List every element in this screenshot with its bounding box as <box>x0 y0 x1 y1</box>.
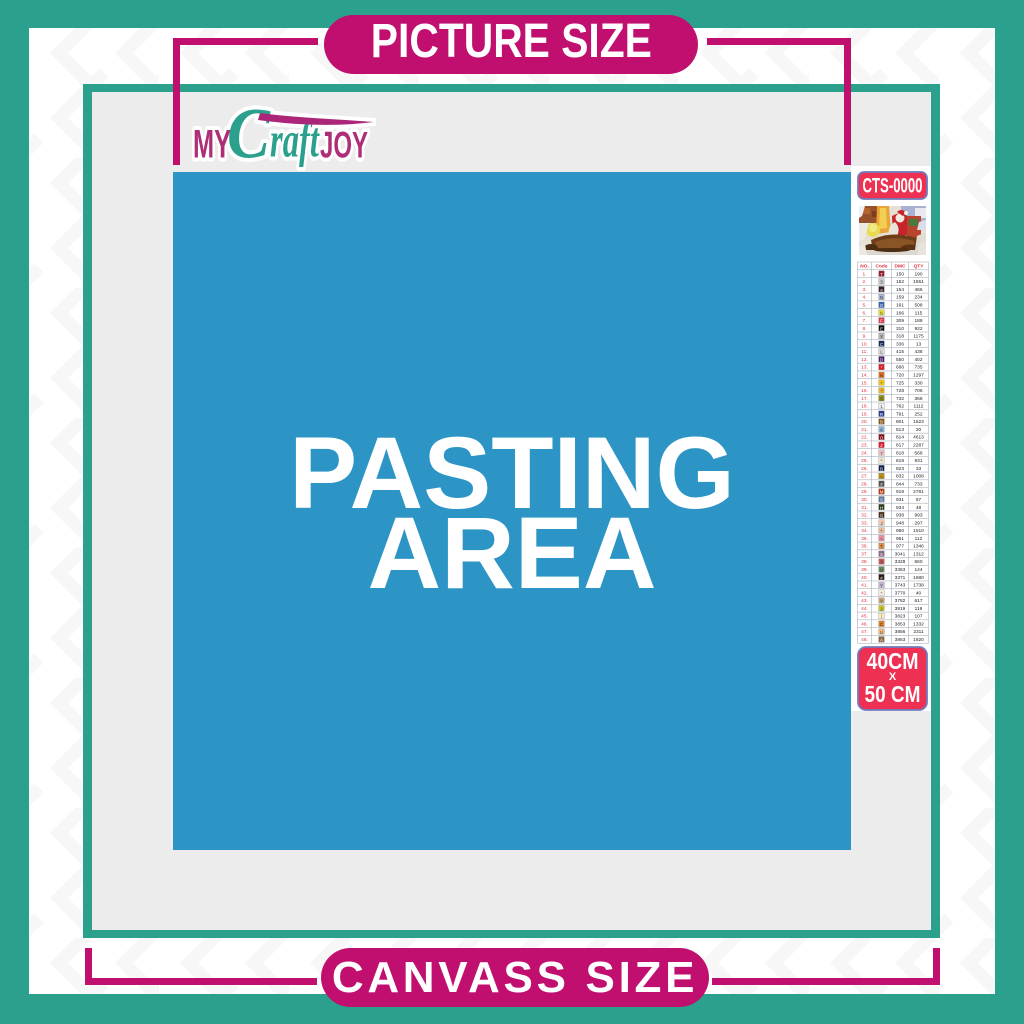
svg-text:33.: 33. <box>861 520 868 526</box>
svg-text:Code: Code <box>876 264 888 270</box>
svg-text:1.: 1. <box>862 271 866 277</box>
svg-text:38.: 38. <box>861 559 868 565</box>
svg-text:X: X <box>880 334 883 339</box>
svg-text:1297: 1297 <box>913 373 924 379</box>
svg-text:41.: 41. <box>861 583 868 589</box>
svg-text:47.: 47. <box>861 629 868 635</box>
svg-text:725: 725 <box>896 380 904 386</box>
svg-text:U: U <box>880 568 883 573</box>
svg-text:T: T <box>880 272 883 277</box>
svg-text:950: 950 <box>896 528 904 534</box>
svg-text:G: G <box>880 513 883 518</box>
svg-text:617: 617 <box>914 598 922 604</box>
svg-text:159: 159 <box>896 295 904 301</box>
svg-text:706: 706 <box>914 388 922 394</box>
svg-text:1346: 1346 <box>913 544 924 550</box>
svg-text:N: N <box>880 295 883 300</box>
svg-text:3856: 3856 <box>895 629 906 635</box>
svg-text:115: 115 <box>915 310 923 316</box>
svg-text:C: C <box>880 342 883 347</box>
svg-text:1332: 1332 <box>913 621 924 627</box>
svg-text:T: T <box>880 544 883 549</box>
svg-text:550: 550 <box>896 357 904 363</box>
svg-text:152: 152 <box>896 279 904 285</box>
svg-text:938: 938 <box>896 513 904 519</box>
svg-text:32.: 32. <box>861 513 868 519</box>
svg-text:161: 161 <box>896 302 904 308</box>
svg-text:310: 310 <box>896 326 904 332</box>
svg-text:948: 948 <box>896 520 904 526</box>
svg-text:3041: 3041 <box>895 551 906 557</box>
svg-text:309: 309 <box>896 318 904 324</box>
svg-text:1738: 1738 <box>913 583 924 589</box>
svg-text:3863: 3863 <box>895 637 906 643</box>
svg-text:318: 318 <box>896 334 904 340</box>
svg-text:154: 154 <box>896 287 904 293</box>
svg-text:N: N <box>880 373 883 378</box>
svg-text:^: ^ <box>881 591 883 596</box>
svg-text:150: 150 <box>896 271 904 277</box>
svg-text:67: 67 <box>916 497 922 503</box>
svg-text:1820: 1820 <box>913 637 924 643</box>
svg-text:660: 660 <box>914 559 922 565</box>
svg-text:15.: 15. <box>861 380 868 386</box>
svg-text:1523: 1523 <box>913 419 924 425</box>
svg-text:13.: 13. <box>861 365 868 371</box>
svg-text:5.: 5. <box>862 302 866 308</box>
svg-text:MY: MY <box>193 123 231 167</box>
svg-text:19.: 19. <box>861 411 868 417</box>
svg-text:3770: 3770 <box>895 590 906 596</box>
svg-text:D: D <box>880 357 883 362</box>
svg-text:922: 922 <box>914 326 922 332</box>
svg-text:190: 190 <box>914 271 922 277</box>
svg-text:732: 732 <box>896 396 904 402</box>
svg-text:112: 112 <box>915 536 923 542</box>
svg-text:G: G <box>880 303 883 308</box>
svg-text:9.: 9. <box>862 334 866 340</box>
svg-text:20.: 20. <box>861 419 868 425</box>
svg-text:36.: 36. <box>861 544 868 550</box>
svg-text:B: B <box>880 466 883 471</box>
svg-text:4.: 4. <box>862 295 866 301</box>
svg-text:NO.: NO. <box>860 264 869 270</box>
svg-text:3823: 3823 <box>895 614 906 620</box>
svg-text:14.: 14. <box>861 373 868 379</box>
svg-text:42.: 42. <box>861 590 868 596</box>
svg-text:J: J <box>880 521 882 526</box>
svg-text:931: 931 <box>896 497 904 503</box>
svg-text:E: E <box>880 326 883 331</box>
svg-text:119: 119 <box>915 606 923 612</box>
svg-text:3819: 3819 <box>895 606 906 612</box>
svg-text:U: U <box>880 630 883 635</box>
svg-text:817: 817 <box>896 443 904 449</box>
svg-text:508: 508 <box>914 302 922 308</box>
svg-text:2.: 2. <box>862 279 866 285</box>
svg-text:931: 931 <box>914 458 922 464</box>
svg-text:11.: 11. <box>861 349 867 355</box>
svg-text:6.: 6. <box>862 310 866 316</box>
svg-text:297: 297 <box>914 520 922 526</box>
svg-text:801: 801 <box>896 419 904 425</box>
svg-text:814: 814 <box>896 435 904 441</box>
svg-text:1008: 1008 <box>913 474 924 480</box>
svg-text:1510: 1510 <box>913 528 924 534</box>
svg-text:V: V <box>880 599 883 604</box>
svg-text:813: 813 <box>896 427 904 433</box>
svg-text:3743: 3743 <box>895 583 906 589</box>
svg-text:762: 762 <box>896 404 904 410</box>
svg-text:34.: 34. <box>861 528 868 534</box>
svg-text:993: 993 <box>914 513 922 519</box>
svg-text:166: 166 <box>896 310 904 316</box>
svg-text:37.: 37. <box>861 551 868 557</box>
svg-text:144: 144 <box>914 567 922 573</box>
svg-text:17.: 17. <box>861 396 868 402</box>
svg-text:F: F <box>880 319 883 324</box>
svg-text:2287: 2287 <box>913 443 924 449</box>
svg-text:3328: 3328 <box>895 559 906 565</box>
svg-text:438: 438 <box>914 349 922 355</box>
svg-text:568: 568 <box>914 450 922 456</box>
svg-text:832: 832 <box>896 474 904 480</box>
svg-text:252: 252 <box>914 411 922 417</box>
svg-text:39.: 39. <box>861 567 868 573</box>
svg-text:234: 234 <box>914 295 922 301</box>
svg-text:43.: 43. <box>861 598 868 604</box>
svg-text:23.: 23. <box>861 443 868 449</box>
svg-text:CTS-0000: CTS-0000 <box>863 175 923 198</box>
svg-text:791: 791 <box>896 411 904 417</box>
svg-text:13: 13 <box>916 341 922 347</box>
svg-text:48: 48 <box>916 505 922 511</box>
svg-text:50 CM: 50 CM <box>865 681 921 707</box>
svg-text:20: 20 <box>916 427 922 433</box>
svg-text:Z: Z <box>880 443 883 448</box>
svg-text:C: C <box>880 622 883 627</box>
svg-text:26.: 26. <box>861 466 868 472</box>
svg-text:818: 818 <box>896 450 904 456</box>
svg-text:27.: 27. <box>861 474 868 480</box>
svg-text:31.: 31. <box>861 505 868 511</box>
svg-text:22.: 22. <box>861 435 868 441</box>
svg-text:10.: 10. <box>861 341 868 347</box>
svg-text:Y: Y <box>880 583 883 588</box>
svg-text:48.: 48. <box>861 637 868 643</box>
svg-text:466: 466 <box>914 287 922 293</box>
svg-text:A: A <box>880 638 883 643</box>
svg-text:1112: 1112 <box>914 404 924 410</box>
svg-text:3371: 3371 <box>895 575 906 581</box>
svg-text:823: 823 <box>896 466 904 472</box>
svg-text:107: 107 <box>914 614 922 620</box>
svg-text:819: 819 <box>896 458 904 464</box>
svg-text:3782: 3782 <box>895 598 906 604</box>
svg-text:40: 40 <box>916 590 922 596</box>
svg-text:728: 728 <box>896 388 904 394</box>
svg-text:C: C <box>227 96 271 171</box>
svg-text:35.: 35. <box>861 536 868 542</box>
svg-text:666: 666 <box>896 365 904 371</box>
svg-text:961: 961 <box>896 536 904 542</box>
svg-text:S: S <box>880 498 883 503</box>
svg-text:733: 733 <box>914 481 922 487</box>
svg-text:188: 188 <box>914 318 922 324</box>
svg-text:^: ^ <box>881 381 883 386</box>
svg-text:16.: 16. <box>861 388 868 394</box>
svg-text:402: 402 <box>914 357 922 363</box>
svg-text:720: 720 <box>896 373 904 379</box>
svg-text:330: 330 <box>914 380 922 386</box>
svg-text:1680: 1680 <box>913 575 924 581</box>
svg-text:S: S <box>880 396 883 401</box>
svg-text:934: 934 <box>896 505 904 511</box>
svg-text:QTY: QTY <box>914 264 925 270</box>
svg-text:29.: 29. <box>861 489 868 495</box>
svg-text:1312: 1312 <box>913 551 924 557</box>
svg-text:3853: 3853 <box>895 621 906 627</box>
svg-text:12.: 12. <box>861 357 868 363</box>
svg-text:919: 919 <box>896 489 904 495</box>
svg-text:977: 977 <box>896 544 904 550</box>
svg-text:415: 415 <box>896 349 904 355</box>
svg-text:336: 336 <box>896 341 904 347</box>
svg-text:^: ^ <box>881 459 883 464</box>
svg-text:25.: 25. <box>861 458 868 464</box>
svg-text:3.: 3. <box>862 287 866 293</box>
svg-text:4613: 4613 <box>913 435 924 441</box>
svg-text:368: 368 <box>914 396 922 402</box>
svg-text:24.: 24. <box>861 450 868 456</box>
svg-text:JOY: JOY <box>320 124 368 166</box>
svg-text:7.: 7. <box>862 318 866 324</box>
svg-text:H: H <box>880 505 883 510</box>
svg-text:B: B <box>880 420 883 425</box>
svg-text:1175: 1175 <box>913 334 924 340</box>
svg-text:46.: 46. <box>861 621 868 627</box>
svg-text:33: 33 <box>916 466 922 472</box>
svg-text:28.: 28. <box>861 481 868 487</box>
svg-text:8.: 8. <box>862 326 866 332</box>
svg-text:44.: 44. <box>861 606 868 612</box>
svg-text:30.: 30. <box>861 497 868 503</box>
svg-text:DMC: DMC <box>895 264 906 270</box>
svg-text:3363: 3363 <box>895 567 906 573</box>
svg-text:18.: 18. <box>861 404 868 410</box>
svg-text:2781: 2781 <box>913 489 924 495</box>
svg-text:M: M <box>880 490 884 495</box>
svg-text:1551: 1551 <box>913 279 924 285</box>
svg-text:40.: 40. <box>861 575 868 581</box>
svg-text:R: R <box>880 412 883 417</box>
svg-text:45.: 45. <box>861 614 868 620</box>
svg-text:735: 735 <box>914 365 922 371</box>
svg-text:21.: 21. <box>861 427 868 433</box>
svg-text:844: 844 <box>896 481 904 487</box>
svg-text:2311: 2311 <box>913 629 924 635</box>
